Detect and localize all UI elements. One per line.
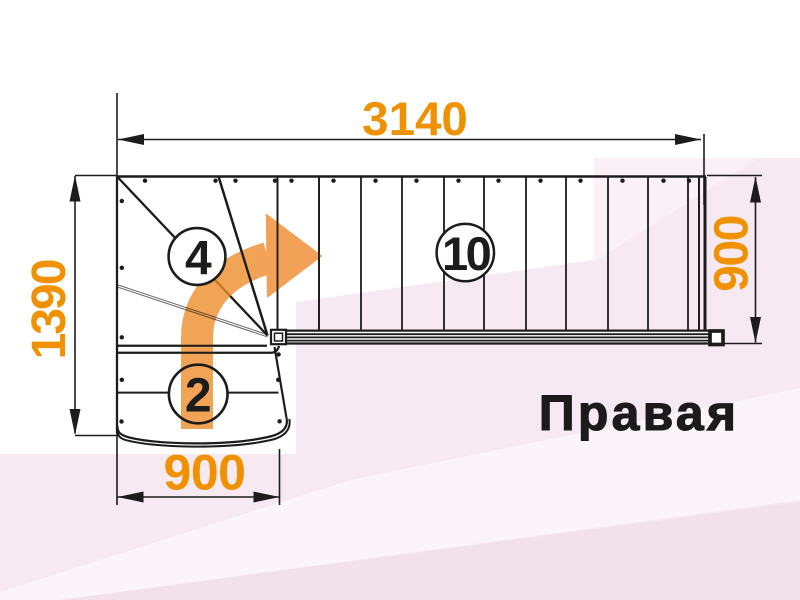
svg-text:900: 900 (706, 216, 759, 292)
svg-text:2: 2 (185, 370, 212, 423)
svg-text:10: 10 (442, 227, 491, 280)
svg-text:1390: 1390 (23, 260, 76, 359)
svg-text:900: 900 (164, 445, 246, 501)
svg-text:Правая: Правая (539, 385, 740, 441)
svg-text:3140: 3140 (362, 93, 468, 146)
svg-text:4: 4 (185, 232, 212, 285)
